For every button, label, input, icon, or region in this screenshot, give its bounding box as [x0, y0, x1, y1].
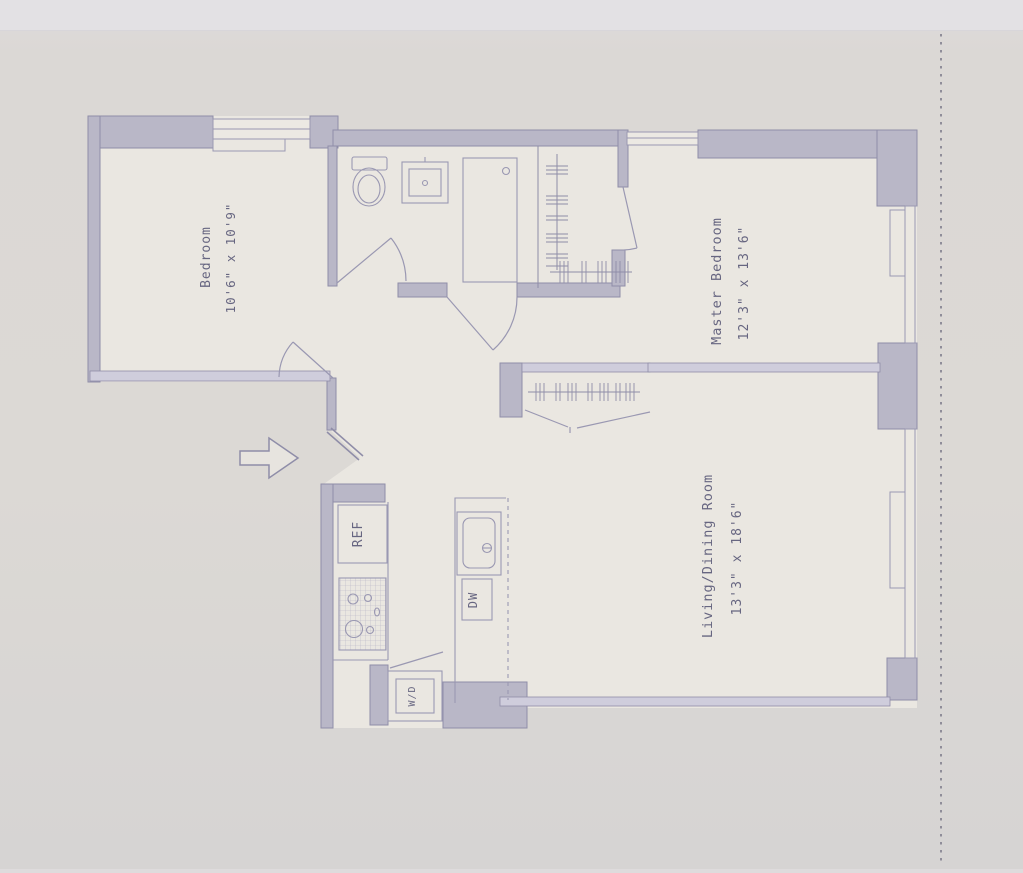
wall-hall-closet-block [500, 363, 522, 417]
wall-bedroom-left [88, 116, 100, 382]
wall-hall-closet-top [522, 363, 650, 372]
master-bedroom-dimensions: 12'3" x 13'6" [737, 226, 752, 341]
wall-bathroom-left [328, 146, 337, 286]
photo-top-strip [0, 0, 1023, 31]
stove-icon [339, 578, 386, 650]
wall-bedroom-top-left [90, 116, 213, 148]
wall-right-bottom-corner [887, 658, 917, 700]
wall-bath-bottom-a [398, 283, 447, 297]
bedroom-label: Bedroom [199, 226, 214, 288]
washer-dryer-label: W/D [407, 685, 418, 706]
wall-hall-vertical [327, 378, 336, 430]
wall-bath-closet-top [333, 130, 627, 146]
wall-closet-jamb-bottom [612, 250, 625, 286]
apartment-floor [88, 116, 917, 728]
wall-master-top [698, 130, 880, 158]
wall-bath-bottom-b [517, 283, 620, 297]
wall-right-top-corner [877, 130, 917, 206]
floor-plan: Bedroom 10'6" x 10'9" Master Bedroom 12'… [0, 0, 1023, 869]
wall-bedroom-bottom [90, 371, 330, 381]
wall-living-bottom [500, 697, 890, 706]
wall-kitchen-left [321, 484, 333, 728]
floor-plan-photo: Bedroom 10'6" x 10'9" Master Bedroom 12'… [0, 0, 1023, 869]
wall-wd-left [370, 665, 388, 725]
bedroom-dimensions: 10'6" x 10'9" [223, 203, 238, 314]
living-dining-dimensions: 13'3" x 18'6" [730, 501, 745, 616]
wall-master-living-divider [648, 363, 880, 372]
living-dining-label: Living/Dining Room [700, 474, 716, 638]
master-bedroom-label: Master Bedroom [709, 217, 725, 345]
entry-arrow-icon [240, 438, 298, 478]
dishwasher-label: DW [466, 592, 480, 608]
wall-right-pier [878, 343, 917, 429]
refrigerator-label: REF [351, 521, 366, 547]
master-top-window [627, 132, 698, 145]
